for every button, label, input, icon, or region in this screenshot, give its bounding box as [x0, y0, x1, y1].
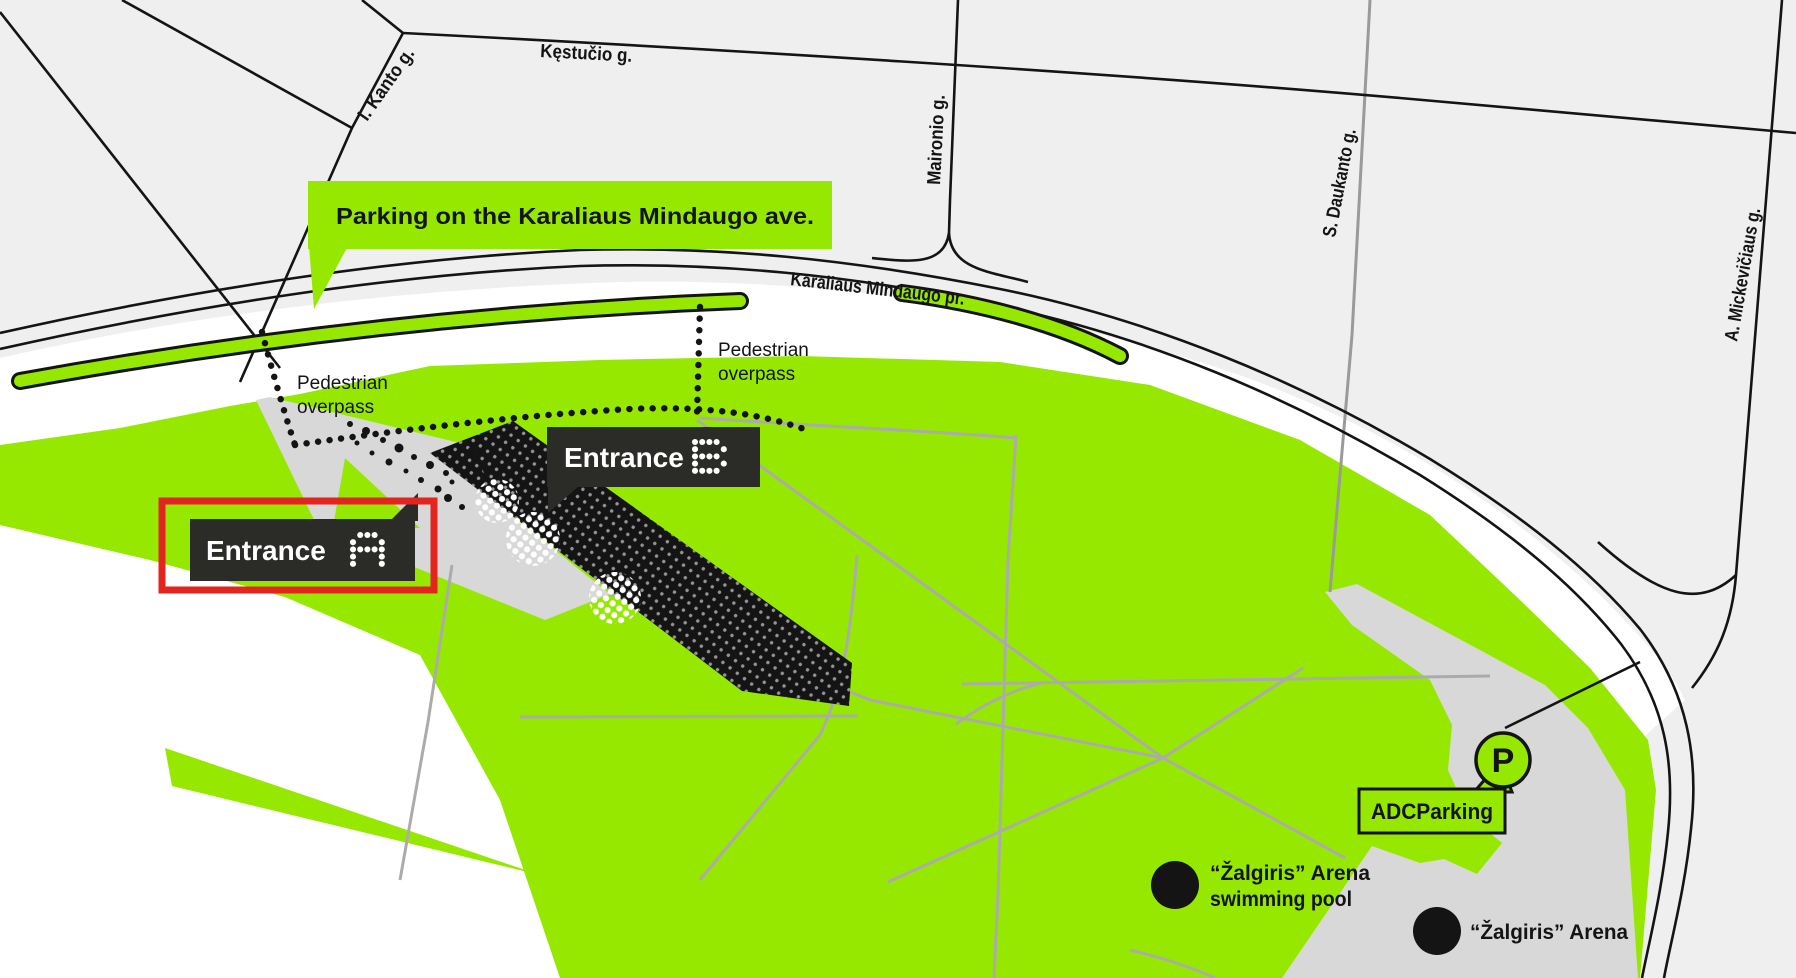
overpass-east-line2: overpass	[718, 364, 795, 385]
overpass-west-line2: overpass	[297, 397, 374, 418]
overpass-east-line1: Pedestrian	[718, 340, 809, 361]
parking-banner-label: Parking on the Karaliaus Mindaugo ave.	[336, 203, 814, 229]
entrance-a-label: Entrance	[206, 535, 326, 566]
pool-label-line2: swimming pool	[1210, 888, 1352, 911]
stage-dot-cluster-2	[506, 512, 560, 566]
adc-parking-label: ADCParking	[1371, 799, 1493, 824]
parking-icon-letter: P	[1492, 742, 1515, 780]
venue-map: Kęstučio g. I. Kanto g. Maironio g. S. D…	[0, 0, 1796, 978]
stage-dot-cluster-3	[589, 572, 641, 624]
stage-dot-cluster-1	[475, 479, 519, 523]
arena-label: “Žalgiris” Arena	[1470, 920, 1628, 944]
overpass-west-line1: Pedestrian	[297, 373, 388, 394]
pool-label-line1: “Žalgiris” Arena	[1210, 861, 1370, 885]
map-canvas: Kęstučio g. I. Kanto g. Maironio g. S. D…	[0, 0, 1796, 978]
entrance-b-label: Entrance	[564, 442, 684, 473]
arena-marker-dot	[1413, 907, 1461, 955]
pool-marker-dot	[1151, 861, 1199, 909]
